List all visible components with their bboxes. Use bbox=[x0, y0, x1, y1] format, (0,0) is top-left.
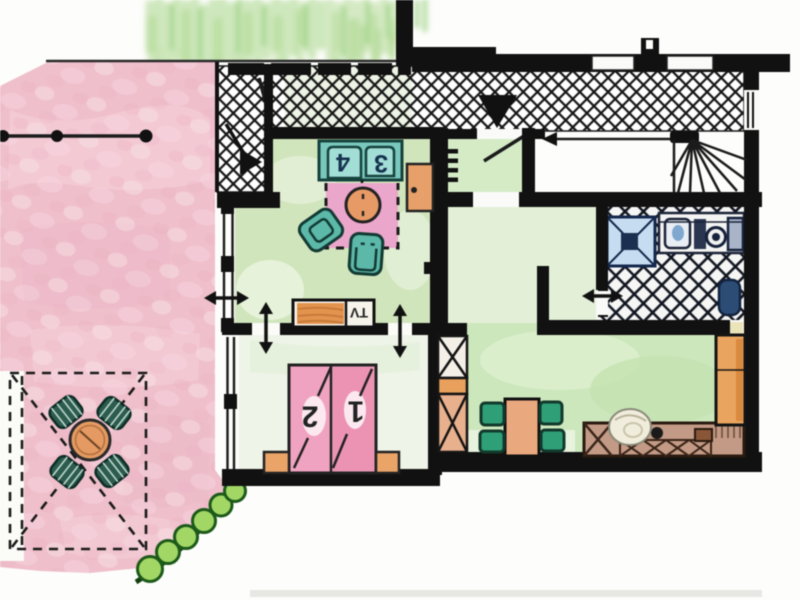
svg-text:2: 2 bbox=[302, 400, 319, 433]
svg-text:4: 4 bbox=[336, 148, 350, 176]
svg-text:1: 1 bbox=[348, 395, 365, 428]
svg-text:TV: TV bbox=[349, 305, 368, 321]
svg-text:3: 3 bbox=[374, 149, 388, 177]
